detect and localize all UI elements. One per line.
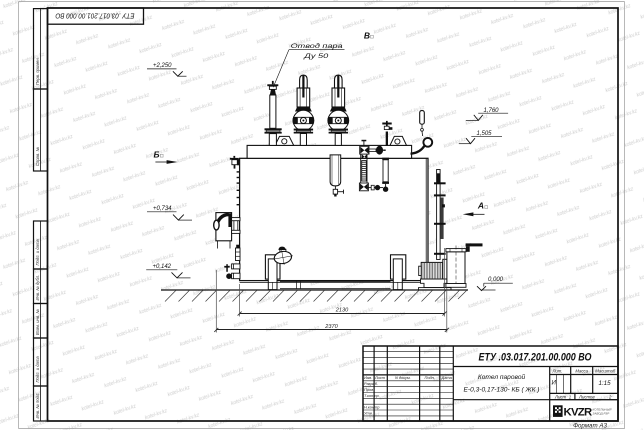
svg-text:N докум.: N докум. bbox=[395, 375, 411, 380]
svg-text:В: В bbox=[364, 31, 370, 41]
svg-text:Инв. № дубл.: Инв. № дубл. bbox=[35, 275, 40, 301]
svg-text:ЕТУ .03.017.201.00.000 ВО: ЕТУ .03.017.201.00.000 ВО bbox=[479, 351, 592, 363]
svg-text:Лист: Лист bbox=[554, 394, 566, 399]
svg-text:2130: 2130 bbox=[335, 308, 349, 314]
svg-text:Подп. и дата: Подп. и дата bbox=[35, 239, 40, 266]
svg-text:Лист: Лист bbox=[374, 375, 386, 380]
svg-text:Изм.: Изм. bbox=[364, 375, 372, 380]
svg-text:Т.контр: Т.контр bbox=[364, 393, 379, 398]
svg-text:И: И bbox=[552, 380, 557, 387]
svg-text:Ду 50: Ду 50 bbox=[303, 53, 329, 60]
svg-text:Пров.: Пров. bbox=[364, 387, 374, 392]
svg-text:Подп. и дата: Подп. и дата bbox=[35, 356, 40, 383]
svg-text:Листов: Листов bbox=[578, 394, 595, 399]
svg-text:Дата: Дата bbox=[441, 375, 453, 380]
svg-text:Взам. инв. №: Взам. инв. № bbox=[35, 309, 40, 335]
svg-text:+2,250: +2,250 bbox=[153, 63, 172, 69]
svg-text:0,000: 0,000 bbox=[488, 277, 504, 283]
svg-text:+0,142: +0,142 bbox=[153, 264, 172, 270]
svg-text:1:15: 1:15 bbox=[598, 380, 611, 387]
svg-text:Разраб.: Разраб. bbox=[364, 381, 378, 386]
svg-text:Инв. № подл.: Инв. № подл. bbox=[35, 393, 40, 419]
svg-text:Масса: Масса bbox=[575, 368, 588, 373]
svg-text:Отвод пара: Отвод пара bbox=[291, 42, 343, 50]
svg-text:Лит.: Лит. bbox=[551, 368, 562, 373]
svg-text:ЗАВОД РЗР: ЗАВОД РЗР bbox=[593, 411, 610, 415]
svg-text:KVZR: KVZR bbox=[564, 406, 592, 418]
svg-text:Е-0,3-0,17-130- КБ ( ЖК ): Е-0,3-0,17-130- КБ ( ЖК ) bbox=[463, 386, 539, 393]
svg-text:ЕТУ .03.017.201.00.000 ВО: ЕТУ .03.017.201.00.000 ВО bbox=[55, 11, 135, 18]
svg-text:Н.контр: Н.контр bbox=[364, 405, 380, 410]
svg-text:Масштаб: Масштаб bbox=[595, 368, 616, 373]
svg-text:А: А bbox=[477, 201, 484, 211]
svg-text:Справ. №: Справ. № bbox=[35, 147, 40, 166]
svg-text:2370: 2370 bbox=[324, 324, 338, 330]
svg-text:Утв.: Утв. bbox=[364, 411, 373, 416]
svg-text:Формат А3: Формат А3 bbox=[573, 422, 607, 429]
svg-text:Котел паровой: Котел паровой bbox=[478, 373, 526, 381]
svg-text:Перв. примен.: Перв. примен. bbox=[35, 57, 40, 85]
svg-text:+0,734: +0,734 bbox=[153, 206, 172, 212]
svg-text:Подп.: Подп. bbox=[425, 375, 435, 380]
svg-text:Б: Б bbox=[154, 150, 160, 160]
